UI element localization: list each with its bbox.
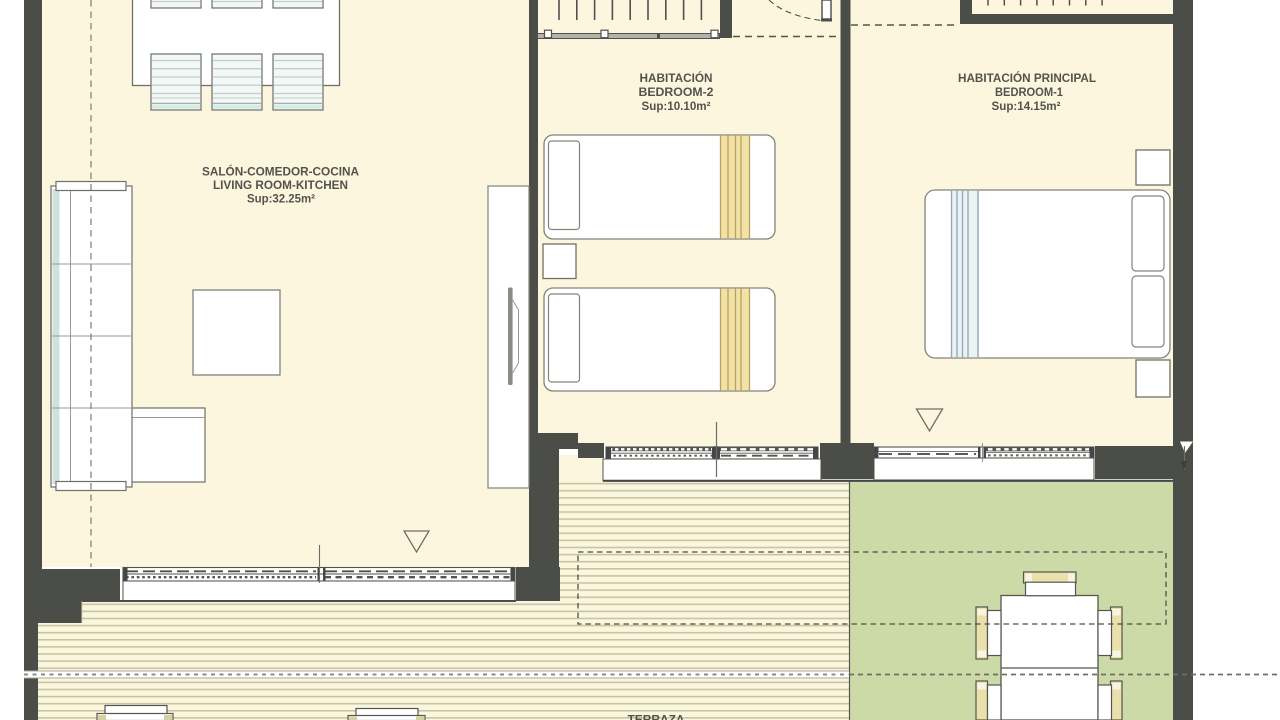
svg-text:HABITACIÓN: HABITACIÓN [640,70,713,85]
svg-text:SALÓN-COMEDOR-COCINA: SALÓN-COMEDOR-COCINA [202,163,359,178]
svg-text:BEDROOM-1: BEDROOM-1 [995,85,1063,99]
svg-text:Sup:10.10m²: Sup:10.10m² [642,99,711,113]
svg-text:TERRAZA: TERRAZA [628,713,685,720]
svg-text:BEDROOM-2: BEDROOM-2 [639,85,714,99]
svg-text:LIVING ROOM-KITCHEN: LIVING ROOM-KITCHEN [213,178,348,192]
svg-text:Sup:32.25m²: Sup:32.25m² [247,192,315,206]
svg-text:HABITACIÓN PRINCIPAL: HABITACIÓN PRINCIPAL [958,70,1097,85]
svg-text:Sup:14.15m²: Sup:14.15m² [992,99,1061,113]
